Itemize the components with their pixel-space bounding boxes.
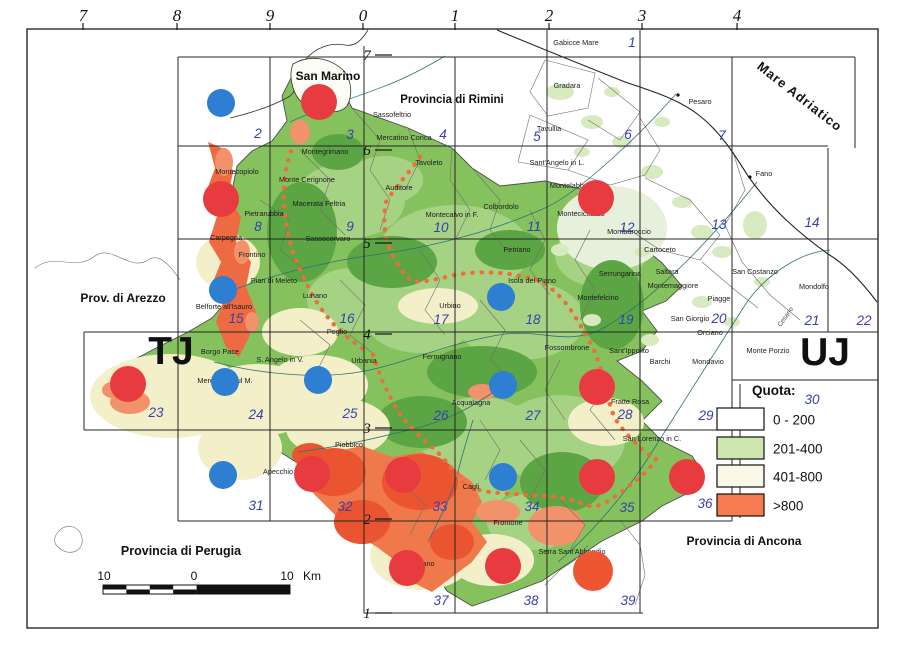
place-label: Apecchio <box>263 467 293 476</box>
sheet-number: 16 <box>339 311 355 326</box>
sheet-number: 27 <box>524 408 541 423</box>
sheet-number: 11 <box>527 219 541 234</box>
blue-site-marker[interactable] <box>489 371 517 399</box>
place-label: Acqualagna <box>452 398 491 407</box>
terrain-patch <box>654 117 670 127</box>
red-site-marker[interactable] <box>110 366 146 402</box>
sheet-number: 18 <box>525 312 541 327</box>
place-label: Sassofeltrio <box>373 110 411 119</box>
red-site-marker[interactable] <box>669 459 705 495</box>
place-label: Carpegna <box>210 233 243 242</box>
red-site-marker[interactable] <box>579 459 615 495</box>
easting-label: 1 <box>451 6 460 25</box>
blue-site-marker[interactable] <box>209 461 237 489</box>
place-label: Isola del Piano <box>508 276 556 285</box>
easting-label: 9 <box>266 6 275 25</box>
place-label: Montemaggiore <box>648 281 699 290</box>
sheet-number: 20 <box>710 311 727 326</box>
red-site-marker[interactable] <box>385 457 421 493</box>
region-label: Provincia di Ancona <box>687 534 802 548</box>
terrain-patch <box>581 115 603 129</box>
place-label: Peglio <box>327 327 347 336</box>
easting-label: 8 <box>173 6 182 25</box>
place-label: Pesaro <box>688 97 711 106</box>
place-label: Orciano <box>697 328 723 337</box>
municipal-boundary <box>55 526 83 552</box>
region-label: Provincia di Perugia <box>121 544 242 558</box>
place-label: Sant'Ippolito <box>609 346 649 355</box>
river-label: Cesano <box>776 306 795 329</box>
scalebar-segment <box>103 585 126 590</box>
scalebar-segment <box>150 585 173 590</box>
orange-red-site-marker[interactable] <box>573 551 613 591</box>
northing-label: 1 <box>363 606 371 622</box>
place-label: Barchi <box>650 357 671 366</box>
sheet-number: 21 <box>803 313 819 328</box>
easting-label: 0 <box>359 6 368 25</box>
sheet-number: 17 <box>433 312 449 327</box>
terrain-patch <box>641 165 663 179</box>
sheet-number: 30 <box>804 392 820 407</box>
region-label: Prov. di Arezzo <box>80 291 165 305</box>
easting-label: 2 <box>545 6 554 25</box>
scalebar-label: 10 <box>280 569 294 583</box>
red-site-marker[interactable] <box>294 456 330 492</box>
place-label: San Giorgio <box>671 314 710 323</box>
northing-label: 3 <box>362 421 371 437</box>
sheet-number: 8 <box>254 219 262 234</box>
sheet-number: 3 <box>346 127 354 142</box>
place-label: S. Angelo in V. <box>256 355 303 364</box>
sheet-number: 28 <box>616 407 633 422</box>
place-label: Sassocorvaro <box>306 234 351 243</box>
place-label: Piagge <box>708 294 731 303</box>
legend-title: Quota: <box>752 383 796 398</box>
place-label: Frontino <box>239 250 266 259</box>
sheet-number: 2 <box>253 126 262 141</box>
place-label: Borgo Pace <box>201 347 239 356</box>
northing-label: 2 <box>363 512 371 528</box>
scalebar-group: 10010Km <box>97 569 321 594</box>
place-label: Piobbico <box>335 440 363 449</box>
sheet-number: 7 <box>718 128 726 143</box>
terrain-patch <box>347 236 437 288</box>
place-label: Fermignano <box>423 352 462 361</box>
place-label: Fano <box>756 169 773 178</box>
place-label: Mondavio <box>692 357 724 366</box>
easting-label: 3 <box>637 6 647 25</box>
terrain-patch <box>743 211 767 239</box>
terrain-patch <box>604 87 620 97</box>
sheet-number: 13 <box>711 217 727 232</box>
sheet-number: 25 <box>341 406 358 421</box>
terrain-patch <box>267 182 337 282</box>
place-label: Urbania <box>351 356 377 365</box>
legend-item-label: 201-400 <box>773 442 823 457</box>
place-label: Frontone <box>493 518 522 527</box>
blue-site-marker[interactable] <box>304 366 332 394</box>
sheet-number: 32 <box>337 499 353 514</box>
legend-swatch <box>717 494 764 516</box>
place-label: Montegrimano <box>302 147 349 156</box>
terrain-patch <box>347 156 423 204</box>
scalebar-segment <box>197 585 290 594</box>
map-canvas[interactable]: 789012347654321 Quota:0 - 200201-400401-… <box>0 0 900 650</box>
utm-zone-label: UJ <box>800 331 850 374</box>
red-site-marker[interactable] <box>389 550 425 586</box>
scalebar-label: Km <box>303 569 321 583</box>
place-label: Sant'Angelo in L. <box>530 158 585 167</box>
sheet-number: 22 <box>855 313 872 328</box>
terrain-patch <box>290 120 310 144</box>
terrain-patch <box>430 524 474 560</box>
map-page: 789012347654321 Quota:0 - 200201-400401-… <box>0 0 900 650</box>
sheet-number: 14 <box>804 215 819 230</box>
legend-swatch <box>717 408 764 430</box>
sea-label: Mare Adriatico <box>754 59 845 135</box>
place-label: Montecalvo in F. <box>426 210 479 219</box>
place-label: Pian di Meleto <box>251 276 297 285</box>
sheet-number: 5 <box>533 129 541 144</box>
scalebar-segment <box>126 590 149 595</box>
red-site-marker[interactable] <box>301 84 337 120</box>
scalebar-segment <box>173 590 196 595</box>
place-label: Fossombrone <box>545 343 590 352</box>
legend-swatch <box>717 437 764 459</box>
terrain-patch <box>245 312 259 332</box>
legend-item-label: 0 - 200 <box>773 413 815 428</box>
municipal-boundary <box>35 253 180 280</box>
sheet-number: 10 <box>433 220 449 235</box>
sheet-number: 23 <box>147 405 164 420</box>
sheet-number: 9 <box>346 219 354 234</box>
northing-label: 5 <box>363 236 371 252</box>
place-label: Pietrarubbia <box>244 209 284 218</box>
place-label: Auditore <box>385 183 412 192</box>
place-label: San Costanzo <box>732 267 778 276</box>
legend-item-label: >800 <box>773 499 803 514</box>
place-label: Petriano <box>503 245 530 254</box>
easting-label: 4 <box>733 6 742 25</box>
place-label: Serrungarina <box>599 269 642 278</box>
blue-site-marker[interactable] <box>487 283 515 311</box>
place-label: Lunano <box>303 291 327 300</box>
place-label: Monte Cerignone <box>279 175 335 184</box>
place-label: Mercatino Conca <box>376 133 432 142</box>
sheet-number: 38 <box>523 593 539 608</box>
sheet-number: 31 <box>248 498 263 513</box>
place-label: Monte Porzio <box>747 346 790 355</box>
scalebar-label: 10 <box>97 569 111 583</box>
sheet-number: 29 <box>697 408 714 423</box>
place-label: San Lorenzo in C. <box>623 434 681 443</box>
place-label: Gabicce Mare <box>553 38 598 47</box>
red-site-marker[interactable] <box>485 548 521 584</box>
fano-town-dot <box>748 175 751 178</box>
sheet-number: 24 <box>247 407 263 422</box>
place-label: Urbino <box>439 301 461 310</box>
place-label: Mondolfo <box>799 282 829 291</box>
scalebar-label: 0 <box>191 569 198 583</box>
red-site-marker[interactable] <box>578 180 614 216</box>
region-label: Provincia di Rimini <box>400 94 504 106</box>
sheet-number: 33 <box>432 499 448 514</box>
northing-label: 6 <box>363 143 371 159</box>
place-label: Gradara <box>554 81 582 90</box>
blue-site-marker[interactable] <box>489 463 517 491</box>
northing-label: 4 <box>363 327 371 343</box>
utm-zone-label: TJ <box>148 330 194 373</box>
terrain-patch <box>672 196 692 208</box>
sheet-number: 37 <box>433 593 449 608</box>
sheet-number: 1 <box>628 35 636 50</box>
sheet-number: 4 <box>439 127 447 142</box>
terrain-patch <box>712 246 732 258</box>
northing-label: 7 <box>363 48 372 64</box>
terrain-patch <box>551 244 569 256</box>
easting-label: 7 <box>79 6 89 25</box>
sheet-number: 15 <box>228 311 244 326</box>
legend-swatch <box>717 465 764 487</box>
sheet-number: 34 <box>524 499 539 514</box>
blue-site-marker[interactable] <box>209 276 237 304</box>
region-label: San Marino <box>296 69 361 83</box>
place-label: Montecopiolo <box>215 167 258 176</box>
sheet-number: 36 <box>697 496 713 511</box>
place-label: Cartoceto <box>644 245 676 254</box>
sheet-number: 39 <box>620 593 636 608</box>
red-site-marker[interactable] <box>203 181 239 217</box>
terrain-patch <box>583 314 601 326</box>
red-site-marker[interactable] <box>579 369 615 405</box>
place-label: Montefelcino <box>577 293 618 302</box>
place-label: Cagli <box>463 482 480 491</box>
place-label: Tavoleto <box>415 158 442 167</box>
terrain-patch <box>641 334 659 346</box>
sheet-number: 19 <box>618 312 634 327</box>
sheet-number: 35 <box>619 500 635 515</box>
blue-site-marker[interactable] <box>207 89 235 117</box>
place-label: Fratte Rosa <box>611 397 650 406</box>
blue-site-marker[interactable] <box>211 368 239 396</box>
place-label: Saltara <box>655 267 679 276</box>
place-label: Macerata Feltria <box>293 199 347 208</box>
sheet-number: 12 <box>619 220 635 235</box>
sheet-number: 6 <box>624 127 632 142</box>
place-label: Colbordolo <box>483 202 518 211</box>
sheet-number: 26 <box>432 408 449 423</box>
legend-item-label: 401-800 <box>773 470 823 485</box>
pesaro-town-dot <box>676 93 679 96</box>
